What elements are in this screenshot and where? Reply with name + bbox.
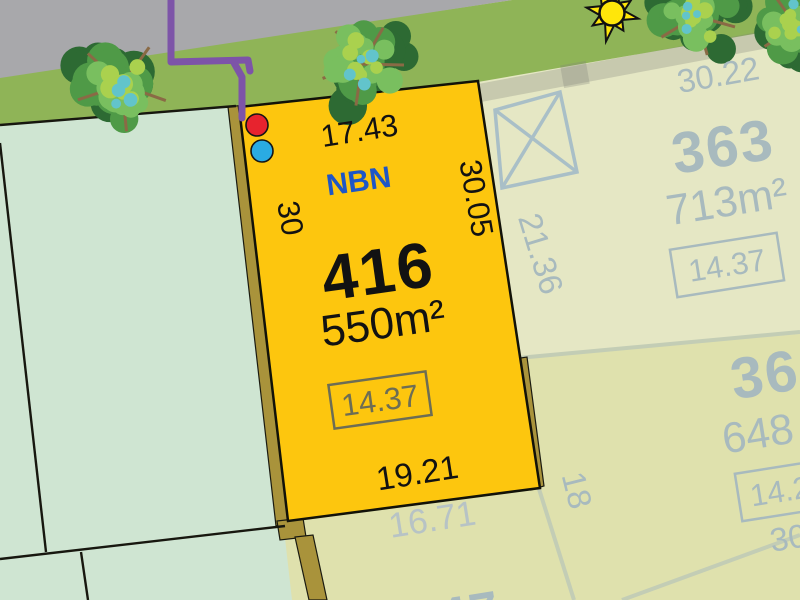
driveway-marker	[560, 61, 590, 88]
blue-service-marker	[251, 140, 273, 162]
lot36x-dim-bottom: 30	[767, 516, 800, 558]
estate-lot-map: 17.43 NBN 30 30.05 416 550m² 14.37 19.21…	[0, 0, 800, 600]
lot36x-number: 36	[726, 337, 800, 412]
red-service-marker	[246, 114, 268, 136]
lot416-dim-left: 30	[270, 198, 310, 238]
